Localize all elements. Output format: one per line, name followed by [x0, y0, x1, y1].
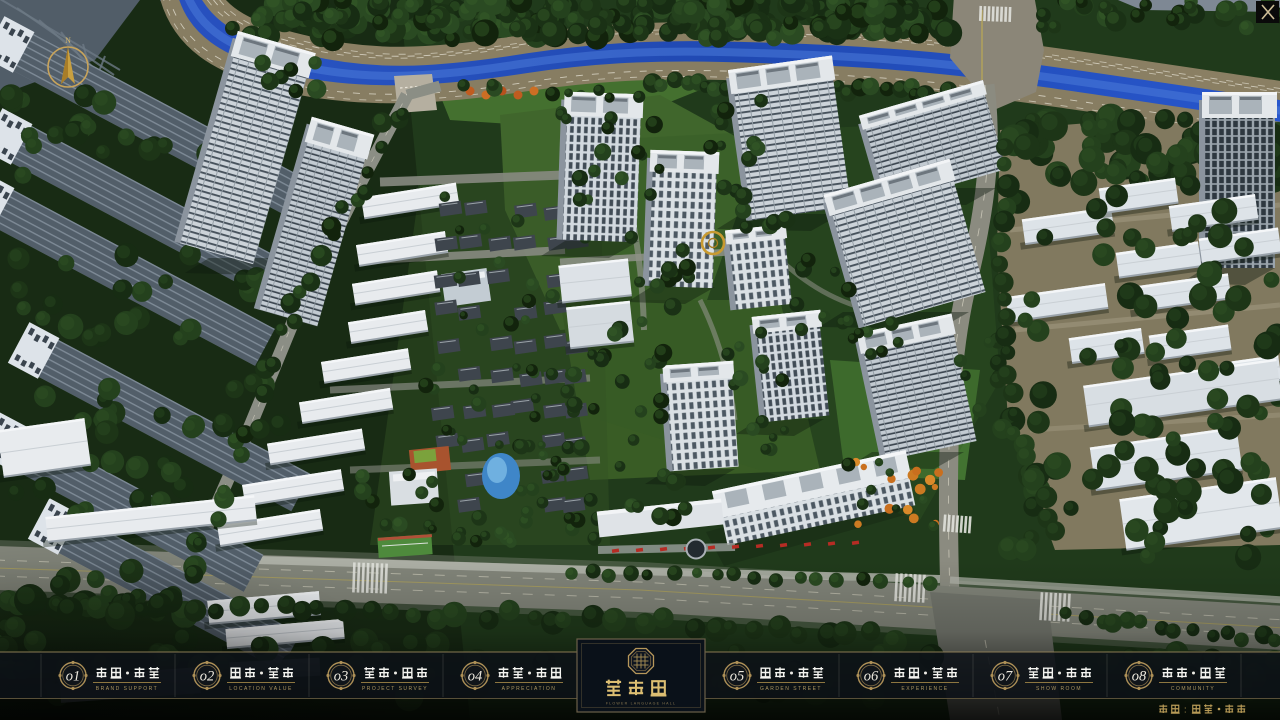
- svg-text:o5: o5: [730, 669, 745, 685]
- svg-text::: :: [1184, 705, 1187, 715]
- svg-text:APPRECIATION: APPRECIATION: [502, 686, 557, 692]
- svg-text:LOCATION VALUE: LOCATION VALUE: [229, 686, 293, 692]
- svg-text:o3: o3: [334, 669, 349, 685]
- svg-text:o2: o2: [200, 669, 215, 685]
- svg-text:o7: o7: [998, 669, 1013, 685]
- svg-text:N: N: [65, 36, 71, 45]
- svg-text:BRAND SUPPORT: BRAND SUPPORT: [96, 686, 158, 692]
- svg-text:EXPERIENCE: EXPERIENCE: [901, 686, 948, 692]
- svg-text:o4: o4: [468, 669, 483, 685]
- svg-text:COMMUNITY: COMMUNITY: [1171, 686, 1215, 692]
- svg-text:GARDEN STREET: GARDEN STREET: [760, 686, 822, 692]
- svg-text:SHOW ROOM: SHOW ROOM: [1036, 686, 1082, 692]
- svg-text:FLOWER LANGUAGE HALL: FLOWER LANGUAGE HALL: [606, 702, 676, 706]
- svg-text:PROJECT SURVEY: PROJECT SURVEY: [362, 686, 428, 692]
- svg-text:o1: o1: [66, 669, 81, 685]
- svg-text:o6: o6: [864, 669, 879, 685]
- svg-text:o8: o8: [1132, 669, 1147, 685]
